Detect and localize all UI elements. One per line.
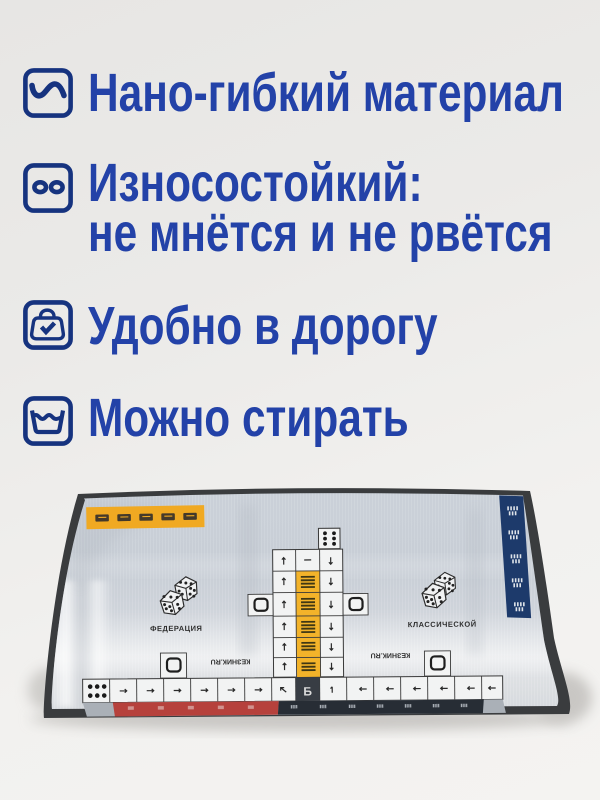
svg-text:КЕЗНИК.RU: КЕЗНИК.RU	[371, 651, 411, 658]
svg-text:КЕЗНИК.RU: КЕЗНИК.RU	[211, 657, 251, 664]
svg-text:ФЕДЕРАЦИЯ: ФЕДЕРАЦИЯ	[150, 624, 202, 633]
svg-text:Б: Б	[303, 684, 312, 698]
svg-text:КЛАССИЧЕСКОЙ: КЛАССИЧЕСКОЙ	[408, 620, 477, 630]
